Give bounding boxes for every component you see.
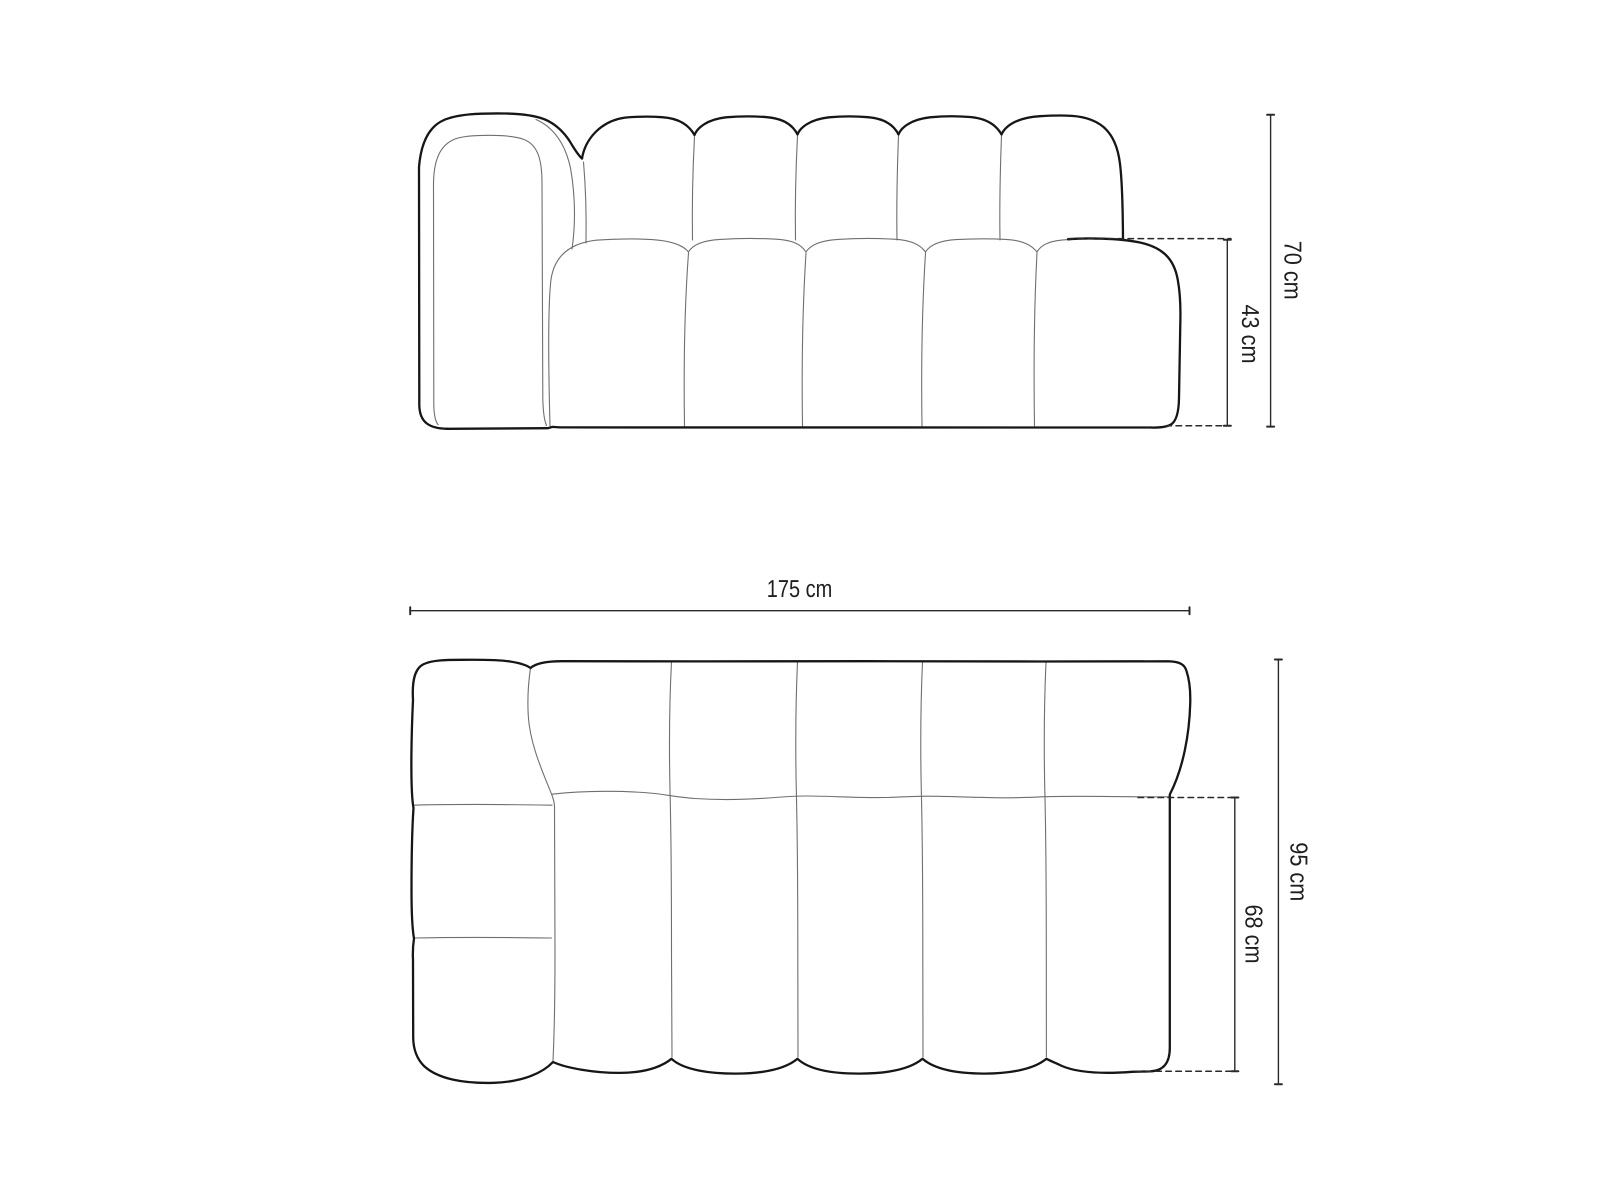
svg-text:95 cm: 95 cm bbox=[1284, 842, 1311, 901]
svg-text:43 cm: 43 cm bbox=[1236, 305, 1263, 364]
svg-text:68 cm: 68 cm bbox=[1240, 905, 1267, 964]
svg-text:70 cm: 70 cm bbox=[1279, 241, 1306, 300]
svg-text:175 cm: 175 cm bbox=[767, 576, 833, 603]
